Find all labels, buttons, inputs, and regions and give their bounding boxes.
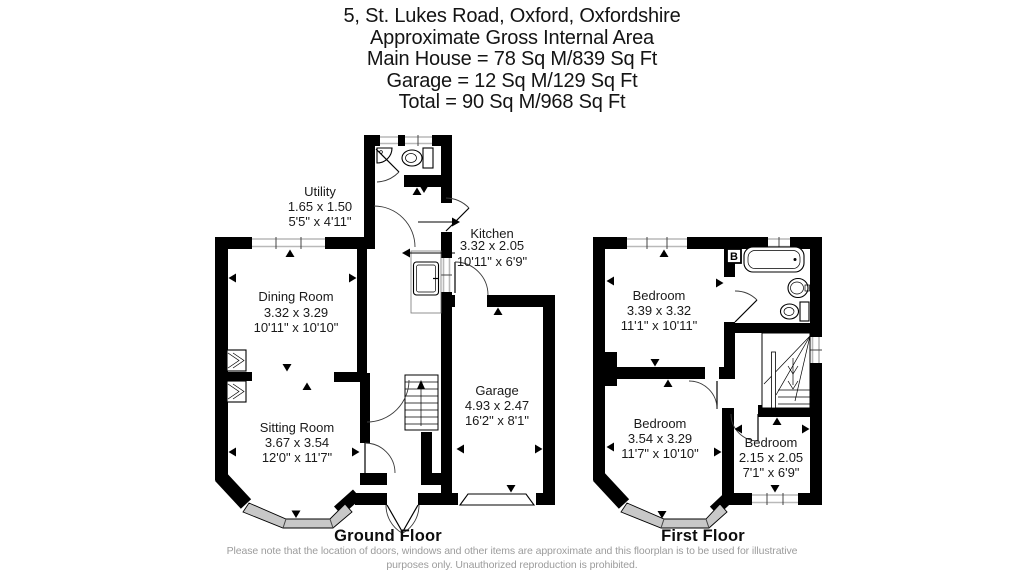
bedroom3-imperial: 7'1" x 6'9" bbox=[743, 465, 800, 480]
bath-icon bbox=[744, 247, 804, 272]
bedroom3-label: Bedroom bbox=[745, 435, 798, 450]
garage-imperial: 16'2" x 8'1" bbox=[465, 413, 529, 428]
stairs-down-icon bbox=[762, 333, 810, 408]
first-floor-plan: B bbox=[593, 237, 822, 545]
ground-floor-plan: Utility 1.65 x 1.50 5'5" x 4'11" Dining … bbox=[215, 135, 555, 545]
kitchen-sink-icon bbox=[411, 251, 441, 313]
sitting-room-imperial: 12'0" x 11'7" bbox=[262, 450, 333, 465]
disclaimer-line1: Please note that the location of doors, … bbox=[0, 544, 1024, 558]
wc-window bbox=[380, 135, 398, 146]
garage-label: Garage bbox=[475, 383, 518, 398]
bedroom3-window bbox=[752, 493, 798, 505]
boiler-badge: B bbox=[727, 249, 741, 263]
utility-imperial: 5'5" x 4'11" bbox=[288, 214, 351, 229]
bathroom-door bbox=[735, 291, 757, 322]
sitting-room-label: Sitting Room bbox=[260, 420, 334, 435]
sitting-room-door bbox=[365, 443, 395, 473]
ground-floor-title: Ground Floor bbox=[334, 527, 442, 545]
toilet-icon-first bbox=[781, 302, 810, 321]
stairs-up-icon bbox=[405, 375, 438, 430]
bedroom1-metric: 3.39 x 3.32 bbox=[627, 303, 691, 318]
bay-window-first bbox=[598, 476, 732, 528]
kitchen-window bbox=[441, 258, 452, 292]
garage-metric: 4.93 x 2.47 bbox=[465, 398, 529, 413]
utility-kitchen-door bbox=[374, 206, 415, 247]
bedroom2-metric: 3.54 x 3.29 bbox=[628, 431, 692, 446]
floorplan-canvas: Utility 1.65 x 1.50 5'5" x 4'11" Dining … bbox=[0, 0, 1024, 578]
dining-room-label: Dining Room bbox=[258, 289, 333, 304]
bedroom1-imperial: 11'1" x 10'11" bbox=[621, 318, 698, 333]
dining-window bbox=[252, 237, 325, 249]
disclaimer-line2: purposes only. Unauthorized reproduction… bbox=[0, 558, 1024, 572]
kitchen-metric: 3.32 x 2.05 bbox=[460, 238, 524, 253]
dining-room-metric: 3.32 x 3.29 bbox=[264, 305, 328, 320]
bedroom2-door bbox=[689, 381, 717, 409]
dining-room-imperial: 10'11" x 10'10" bbox=[254, 320, 339, 335]
bedroom3-metric: 2.15 x 2.05 bbox=[739, 450, 803, 465]
disclaimer: Please note that the location of doors, … bbox=[0, 544, 1024, 572]
utility-label: Utility bbox=[304, 184, 336, 199]
garage-door bbox=[460, 494, 534, 505]
utility-metric: 1.65 x 1.50 bbox=[288, 199, 352, 214]
kitchen-imperial: 10'11" x 6'9" bbox=[457, 254, 528, 269]
bedroom1-label: Bedroom bbox=[633, 288, 686, 303]
kitchen-hall-door bbox=[367, 380, 409, 422]
bedroom2-imperial: 11'7" x 10'10" bbox=[621, 446, 699, 461]
toilet-icon bbox=[402, 148, 433, 168]
boiler-label: B bbox=[730, 251, 738, 263]
corner-basin-icon bbox=[377, 148, 392, 163]
floorplan-page: 5, St. Lukes Road, Oxford, Oxfordshire A… bbox=[0, 0, 1024, 578]
bay-window-ground bbox=[220, 476, 357, 528]
bedroom1-window bbox=[627, 237, 687, 249]
bedroom2-label: Bedroom bbox=[634, 416, 687, 431]
stairwell-window bbox=[810, 337, 822, 363]
sitting-room-metric: 3.67 x 3.54 bbox=[265, 435, 329, 450]
utility-leader-line bbox=[418, 218, 460, 227]
first-floor-title: First Floor bbox=[661, 527, 745, 545]
basin-icon bbox=[788, 279, 810, 298]
wc-window-2 bbox=[405, 135, 432, 146]
